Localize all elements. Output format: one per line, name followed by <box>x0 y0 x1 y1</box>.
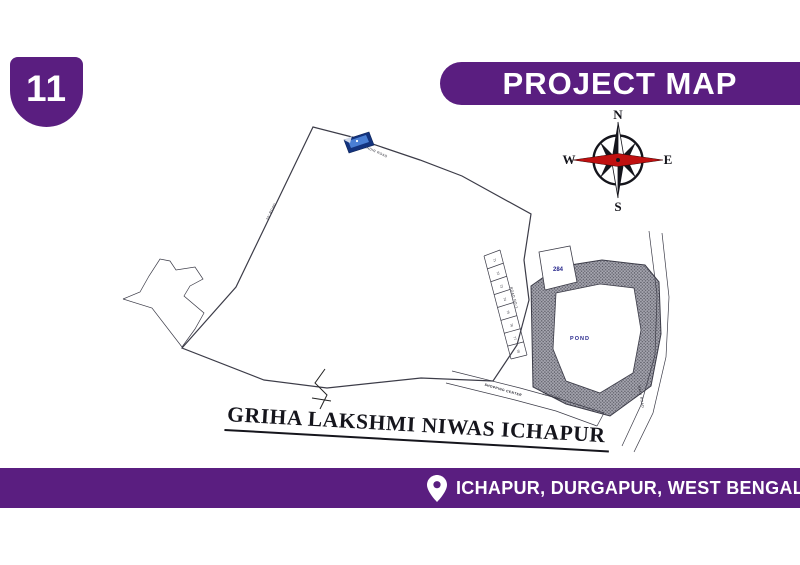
svg-text:AW11: AW11 <box>167 136 176 142</box>
svg-text:BE9: BE9 <box>152 103 159 108</box>
svg-text:71: 71 <box>492 258 497 263</box>
project-map-banner: PROJECT MAP <box>440 62 800 105</box>
svg-text:AW1: AW1 <box>211 28 219 33</box>
svg-text:20' ROAD: 20' ROAD <box>170 87 181 106</box>
svg-text:DE15: DE15 <box>39 133 48 139</box>
shopping-center-label: SHOPPING CENTER <box>484 383 523 398</box>
numeric-plot-strip: 7172737475767778 <box>484 250 527 359</box>
svg-text:AE1: AE1 <box>229 34 236 39</box>
svg-text:BE15: BE15 <box>125 168 134 174</box>
svg-text:EW11: EW11 <box>0 67 5 73</box>
compass-s-label: S <box>614 199 621 214</box>
svg-text:GE6: GE6 <box>214 8 221 13</box>
svg-text:CW5: CW5 <box>108 37 116 42</box>
svg-text:ROAD NO-2: ROAD NO-2 <box>126 68 138 90</box>
svg-text:BW6: BW6 <box>146 65 154 70</box>
location-text: ICHAPUR, DURGAPUR, WEST BENGAL 713363 <box>456 478 800 499</box>
svg-text:CW12: CW12 <box>77 112 87 118</box>
svg-text:BW14: BW14 <box>111 151 121 157</box>
svg-text:AW14: AW14 <box>153 168 162 174</box>
svg-text:AW7: AW7 <box>185 93 193 98</box>
svg-text:AW6: AW6 <box>189 82 197 87</box>
page-title: PROJECT MAP <box>503 66 738 102</box>
svg-text:BE12: BE12 <box>138 135 147 141</box>
slide-number: 11 <box>26 68 67 116</box>
coastline <box>123 259 204 347</box>
svg-text:BE8: BE8 <box>156 93 163 98</box>
svg-text:EW9: EW9 <box>5 45 13 50</box>
svg-text:75: 75 <box>506 310 511 315</box>
svg-text:AW4: AW4 <box>198 61 206 66</box>
svg-text:DE6: DE6 <box>79 36 86 41</box>
svg-text:AE5: AE5 <box>212 77 219 82</box>
svg-text:EW7: EW7 <box>14 24 22 29</box>
svg-text:77: 77 <box>512 336 517 341</box>
svg-text:DW6: DW6 <box>61 30 69 35</box>
svg-text:BE5: BE5 <box>169 60 176 65</box>
svg-text:BE2: BE2 <box>182 28 189 33</box>
svg-text:BW4: BW4 <box>155 43 163 48</box>
svg-text:CE16: CE16 <box>78 161 87 167</box>
west-road-label: 20' ROAD <box>265 202 277 220</box>
svg-text:CE7: CE7 <box>118 64 125 69</box>
svg-text:EE15: EE15 <box>0 116 5 122</box>
svg-text:CE11: CE11 <box>100 107 109 113</box>
plot-284-label: 284 <box>553 267 564 273</box>
svg-text:AE7: AE7 <box>203 99 210 104</box>
svg-text:AW12: AW12 <box>162 147 171 153</box>
svg-text:72: 72 <box>496 271 501 276</box>
svg-text:78: 78 <box>516 349 521 354</box>
svg-text:BW1: BW1 <box>168 11 176 16</box>
svg-text:AE11: AE11 <box>185 142 193 148</box>
svg-text:EE5: EE5 <box>41 8 48 13</box>
svg-text:AE2: AE2 <box>225 45 232 50</box>
svg-text:AW3: AW3 <box>202 50 210 55</box>
svg-text:BE1: BE1 <box>187 17 194 22</box>
svg-text:EW5: EW5 <box>23 2 31 7</box>
svg-text:AW15: AW15 <box>149 179 158 185</box>
svg-text:BW12: BW12 <box>119 129 129 135</box>
svg-text:CE10: CE10 <box>104 97 113 103</box>
location-bar: ICHAPUR, DURGAPUR, WEST BENGAL 713363 <box>0 468 800 508</box>
svg-text:EE6: EE6 <box>37 19 44 24</box>
svg-text:CE9: CE9 <box>109 86 116 91</box>
svg-text:AW5: AW5 <box>193 71 201 76</box>
svg-text:BW11: BW11 <box>124 119 133 125</box>
svg-text:DW7: DW7 <box>57 41 65 46</box>
svg-text:BW15: BW15 <box>106 162 116 168</box>
svg-text:AE9: AE9 <box>194 121 201 126</box>
svg-text:EW12: EW12 <box>0 78 1 84</box>
estate-boundary <box>182 127 531 388</box>
svg-text:CE4: CE4 <box>131 32 138 37</box>
svg-text:CE2: CE2 <box>140 11 147 16</box>
svg-text:CW16: CW16 <box>59 155 69 161</box>
svg-text:DE5: DE5 <box>84 26 91 31</box>
svg-text:CW2: CW2 <box>121 4 129 9</box>
title-leader-line <box>312 369 331 409</box>
svg-text:ROAD NO-5: ROAD NO-5 <box>41 33 53 55</box>
slide-number-badge: 11 <box>10 57 83 127</box>
svg-text:DE16: DE16 <box>35 144 44 150</box>
svg-text:CW9: CW9 <box>91 80 99 85</box>
svg-text:BW9: BW9 <box>133 97 141 102</box>
svg-text:AW8: AW8 <box>180 104 188 109</box>
svg-text:EE8: EE8 <box>28 41 35 46</box>
svg-text:DW16: DW16 <box>17 138 27 144</box>
svg-text:BE7: BE7 <box>160 82 167 87</box>
svg-text:GE5: GE5 <box>218 0 225 5</box>
svg-text:BE11: BE11 <box>142 125 150 131</box>
svg-text:DE3: DE3 <box>92 4 99 9</box>
svg-text:AE6: AE6 <box>207 88 214 93</box>
svg-text:CW14: CW14 <box>68 134 78 140</box>
svg-text:CW3: CW3 <box>117 15 125 20</box>
svg-text:73: 73 <box>499 284 504 289</box>
svg-text:AW16: AW16 <box>145 190 154 196</box>
svg-text:CE5: CE5 <box>126 43 133 48</box>
compass-rose: N S E W <box>563 107 673 214</box>
svg-text:CE6: CE6 <box>122 54 129 59</box>
compass-w-label: W <box>563 152 576 167</box>
svg-text:AE3: AE3 <box>221 56 228 61</box>
svg-text:BW13: BW13 <box>115 140 125 146</box>
svg-text:74: 74 <box>502 297 507 302</box>
svg-text:76: 76 <box>509 323 514 328</box>
svg-text:CE1: CE1 <box>144 0 151 5</box>
svg-text:CW4: CW4 <box>112 26 120 31</box>
svg-text:BW10: BW10 <box>128 108 138 114</box>
svg-text:EW10: EW10 <box>0 56 10 62</box>
svg-text:BW2: BW2 <box>164 22 172 27</box>
svg-text:BE14: BE14 <box>129 157 138 163</box>
svg-text:DE7: DE7 <box>75 47 82 52</box>
svg-text:AE10: AE10 <box>189 131 198 137</box>
svg-text:EE16: EE16 <box>0 127 1 133</box>
svg-text:BW16: BW16 <box>102 172 112 178</box>
svg-text:DW4: DW4 <box>70 9 78 14</box>
svg-text:AE14: AE14 <box>172 174 181 180</box>
svg-text:BE16: BE16 <box>120 179 129 185</box>
svg-text:AE8: AE8 <box>199 110 206 115</box>
svg-text:AW10: AW10 <box>171 125 180 131</box>
svg-text:DW15: DW15 <box>21 127 31 133</box>
svg-text:BE3: BE3 <box>178 39 185 44</box>
svg-text:CW7: CW7 <box>99 58 107 63</box>
svg-text:AE16: AE16 <box>163 196 172 202</box>
svg-text:DW3: DW3 <box>74 0 82 3</box>
svg-text:AE4: AE4 <box>216 67 223 72</box>
pond-label: POND <box>570 336 590 342</box>
svg-text:CW6: CW6 <box>104 48 112 53</box>
svg-text:CW8: CW8 <box>95 69 103 74</box>
svg-text:GW6: GW6 <box>197 3 205 8</box>
svg-text:AE13: AE13 <box>176 163 185 169</box>
svg-text:EE14: EE14 <box>1 105 10 111</box>
plot-284: 284 <box>539 246 577 290</box>
svg-text:AE12: AE12 <box>180 153 189 159</box>
svg-text:BE10: BE10 <box>147 114 156 120</box>
svg-text:AW9: AW9 <box>176 114 184 119</box>
svg-text:CE14: CE14 <box>86 140 95 146</box>
slide: L31L32L33L34L35L36KW1KE1KW2KE2KW3KE3KW4K… <box>0 0 800 565</box>
svg-text:BW3: BW3 <box>159 33 167 38</box>
svg-text:CW10: CW10 <box>85 91 95 97</box>
location-pin-icon <box>427 475 447 502</box>
svg-text:BE13: BE13 <box>133 146 142 152</box>
svg-text:AE15: AE15 <box>167 185 176 191</box>
compass-e-label: E <box>664 152 673 167</box>
svg-text:CE13: CE13 <box>91 129 100 135</box>
svg-text:AW2: AW2 <box>206 39 214 44</box>
compass-n-label: N <box>613 107 623 122</box>
svg-text:CW15: CW15 <box>64 144 74 150</box>
svg-text:CW11: CW11 <box>81 101 90 107</box>
svg-text:AW13: AW13 <box>158 157 167 163</box>
svg-text:DE4: DE4 <box>88 15 95 20</box>
svg-text:BW8: BW8 <box>138 86 146 91</box>
svg-text:BE4: BE4 <box>174 49 181 54</box>
svg-text:DW5: DW5 <box>65 20 73 25</box>
svg-text:BW5: BW5 <box>151 54 159 59</box>
svg-text:EW8: EW8 <box>10 35 18 40</box>
svg-text:EE7: EE7 <box>33 30 40 35</box>
svg-text:EE4: EE4 <box>46 0 53 3</box>
svg-text:CE3: CE3 <box>135 21 142 26</box>
svg-text:CW13: CW13 <box>72 123 82 129</box>
svg-text:ROAD NO-3: ROAD NO-3 <box>84 50 96 72</box>
svg-text:BW7: BW7 <box>142 76 150 81</box>
svg-text:CE8: CE8 <box>113 75 120 80</box>
svg-text:CE15: CE15 <box>82 151 91 157</box>
svg-text:CE12: CE12 <box>95 118 104 124</box>
svg-text:EW6: EW6 <box>18 13 26 18</box>
svg-text:BE6: BE6 <box>165 71 172 76</box>
